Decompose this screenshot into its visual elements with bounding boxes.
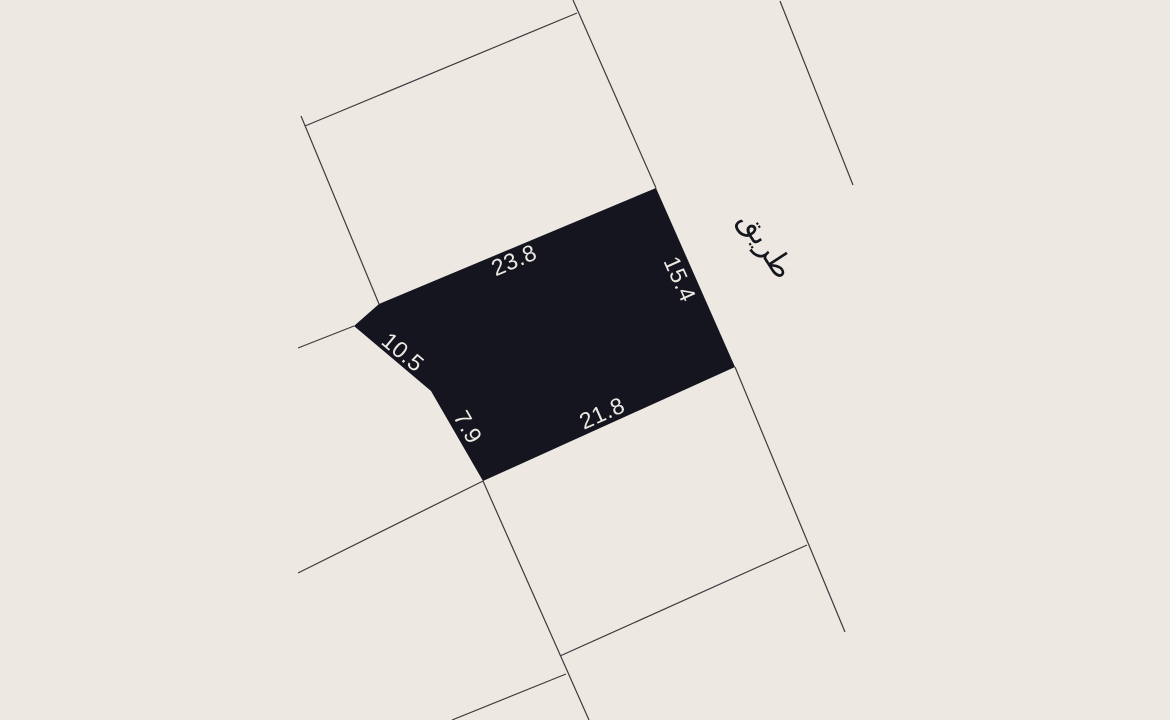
cadastral-map-stage: 23.815.410.57.921.8طريق bbox=[0, 0, 1170, 720]
boundary-line-9 bbox=[452, 674, 566, 720]
boundary-line-6 bbox=[298, 481, 483, 573]
boundary-line-1 bbox=[301, 116, 379, 304]
boundary-line-0 bbox=[305, 13, 577, 126]
parcel-shape[interactable] bbox=[354, 188, 735, 481]
boundary-line-4 bbox=[780, 1, 853, 185]
boundary-line-7 bbox=[483, 481, 589, 720]
parcel-layer bbox=[354, 188, 735, 481]
boundary-line-3 bbox=[735, 367, 845, 632]
boundary-line-5 bbox=[298, 326, 354, 348]
road-label: طريق bbox=[731, 205, 801, 286]
boundary-line-2 bbox=[573, 0, 656, 188]
boundary-line-8 bbox=[560, 545, 807, 656]
cadastral-map: 23.815.410.57.921.8طريق bbox=[0, 0, 1170, 720]
